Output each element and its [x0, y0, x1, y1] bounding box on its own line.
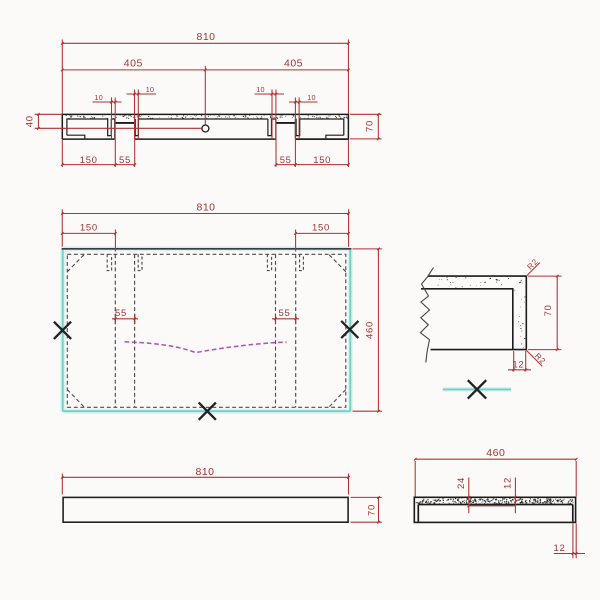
svg-text:55: 55 [119, 155, 131, 166]
svg-text:70: 70 [367, 504, 378, 516]
svg-text:810: 810 [196, 31, 215, 43]
svg-text:55: 55 [115, 308, 127, 319]
svg-text:150: 150 [312, 222, 330, 233]
svg-text:150: 150 [80, 222, 98, 233]
svg-text:405: 405 [284, 58, 303, 70]
svg-text:70: 70 [364, 120, 375, 132]
svg-text:10: 10 [146, 85, 155, 94]
svg-text:12: 12 [512, 359, 524, 370]
svg-text:810: 810 [196, 201, 215, 213]
svg-text:12: 12 [503, 477, 514, 489]
svg-text:55: 55 [279, 308, 291, 319]
svg-text:810: 810 [195, 466, 214, 478]
svg-text:405: 405 [124, 58, 143, 70]
svg-text:24: 24 [456, 477, 467, 489]
svg-text:150: 150 [313, 155, 331, 166]
svg-text:10: 10 [94, 93, 103, 102]
svg-text:12: 12 [554, 543, 566, 554]
svg-text:10: 10 [256, 85, 265, 94]
svg-text:10: 10 [307, 93, 316, 102]
svg-text:150: 150 [80, 155, 98, 166]
svg-text:460: 460 [486, 447, 505, 459]
svg-text:460: 460 [365, 321, 376, 339]
svg-text:55: 55 [280, 155, 292, 166]
svg-text:40: 40 [25, 115, 36, 127]
svg-text:70: 70 [543, 304, 554, 316]
